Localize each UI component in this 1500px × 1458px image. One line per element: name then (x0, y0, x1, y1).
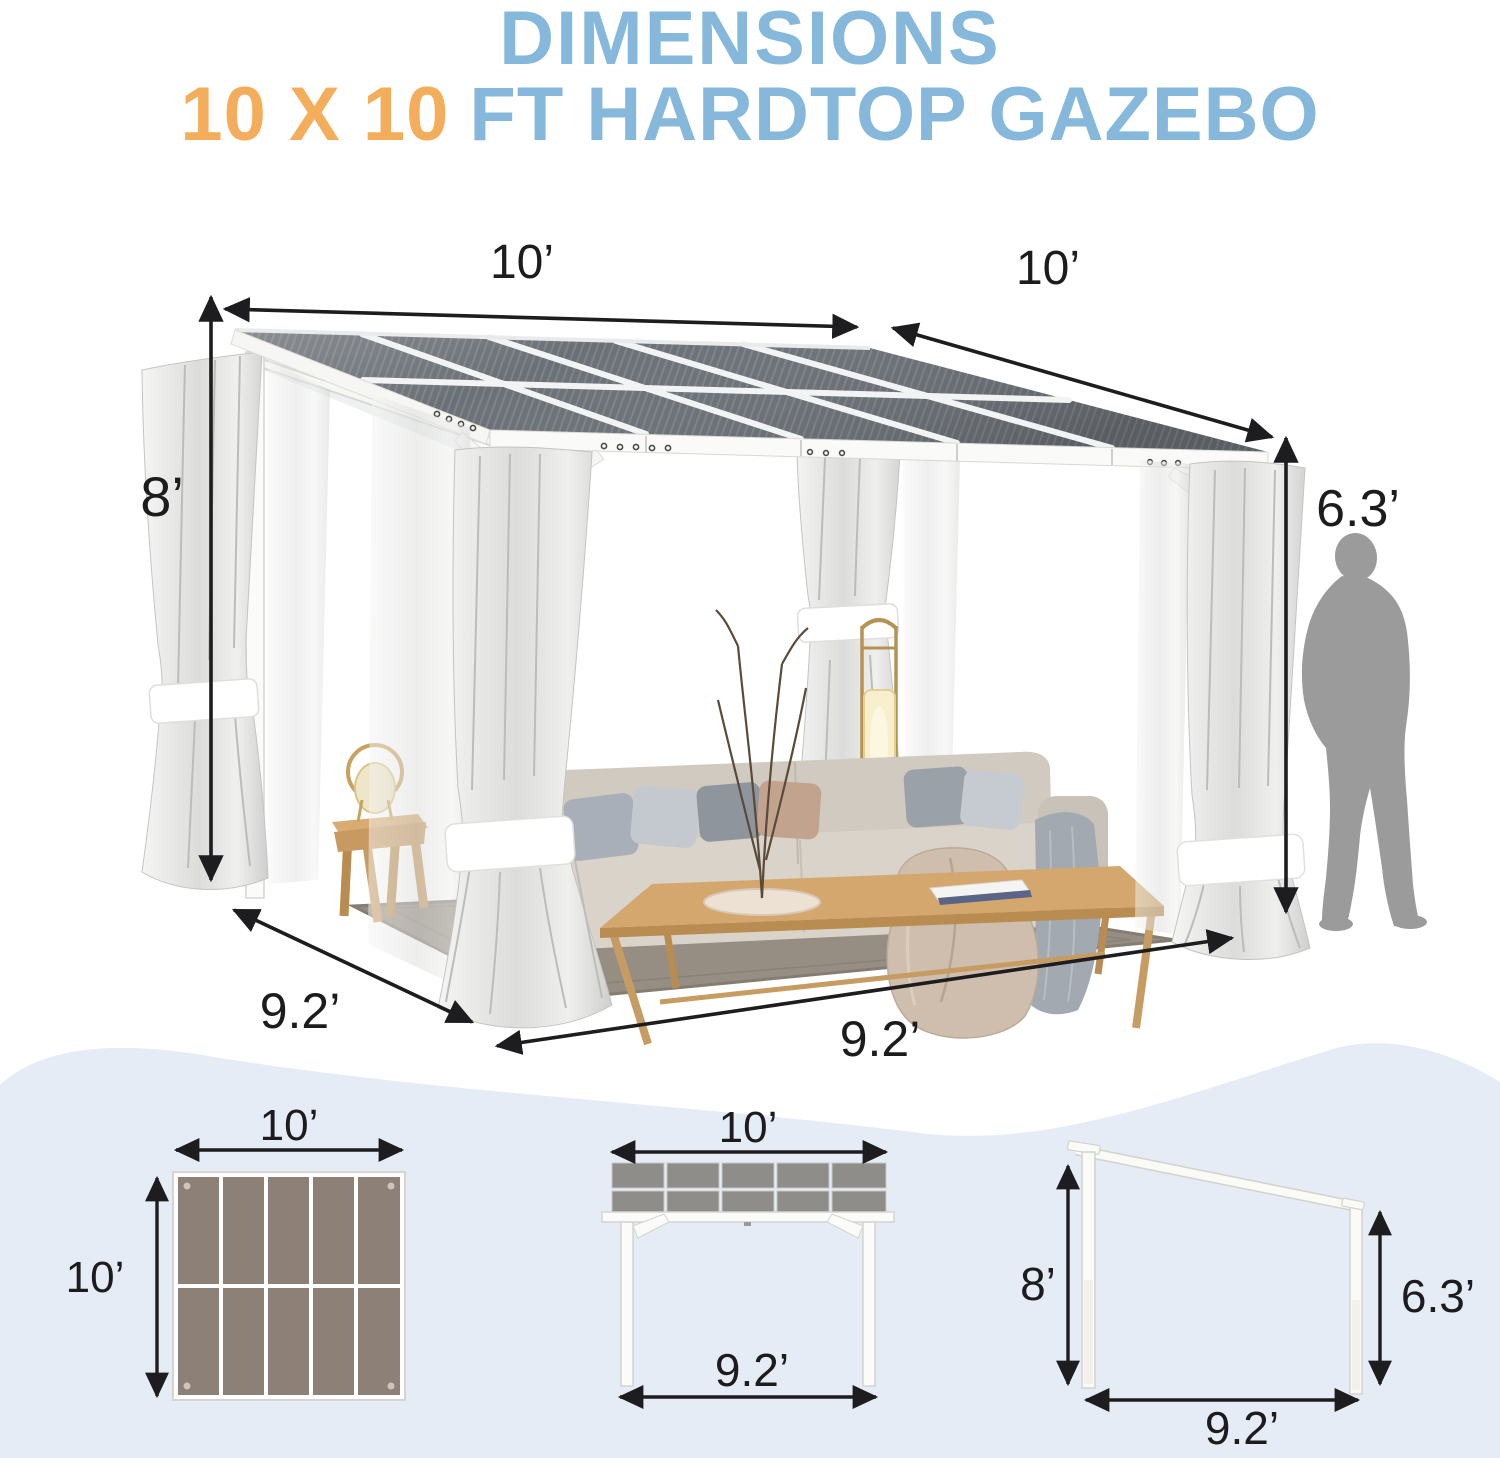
page-title: DIMENSIONS (0, 2, 1500, 76)
curtain-tie-front-left (444, 816, 575, 873)
curtain-back-left-sheer (268, 360, 330, 884)
label-roof-width: 10’ (490, 236, 554, 289)
curtain-tie-back-left (149, 678, 259, 723)
man-silhouette (1302, 530, 1427, 931)
page-subtitle: 10 X 10FT HARDTOP GAZEBO (0, 78, 1500, 152)
label-side-view-base: 9.2’ (1205, 1402, 1279, 1454)
label-top-view-width: 10’ (260, 1101, 319, 1150)
curtain-front-left (438, 447, 612, 1028)
label-side-base: 9.2’ (260, 983, 341, 1039)
header: DIMENSIONS 10 X 10FT HARDTOP GAZEBO (0, 2, 1500, 153)
curtain-tie-back-right (797, 603, 899, 642)
label-front-view-width: 10’ (719, 1103, 778, 1152)
label-side-view-back-height: 8’ (1020, 1258, 1056, 1310)
front-view-beam (602, 1212, 894, 1222)
front-view-leg-left (621, 1222, 633, 1386)
gazebo-illustration (142, 330, 1310, 1044)
label-roof-depth: 10’ (1016, 242, 1080, 295)
subtitle-rest: FT HARDTOP GAZEBO (469, 72, 1319, 157)
label-side-view-front-height: 6.3’ (1401, 1270, 1475, 1322)
label-front-base: 9.2’ (840, 1011, 921, 1067)
label-back-height: 8’ (140, 465, 184, 528)
pillow (630, 785, 701, 849)
front-view-leg-right (863, 1222, 875, 1386)
pillow (959, 769, 1025, 831)
arrow-roof-width (225, 309, 857, 327)
illustration-canvas: 10’ 10’ 8’ 6.3’ 9.2’ 9.2’ 10’ 10’ (0, 0, 1500, 1458)
label-top-view-depth: 10’ (66, 1253, 125, 1302)
label-front-view-base: 9.2’ (715, 1344, 789, 1396)
label-front-height: 6.3’ (1316, 480, 1400, 538)
subtitle-size-highlight: 10 X 10 (180, 72, 449, 157)
gazebo-dimensions-infographic: DIMENSIONS 10 X 10FT HARDTOP GAZEBO (0, 0, 1500, 1458)
